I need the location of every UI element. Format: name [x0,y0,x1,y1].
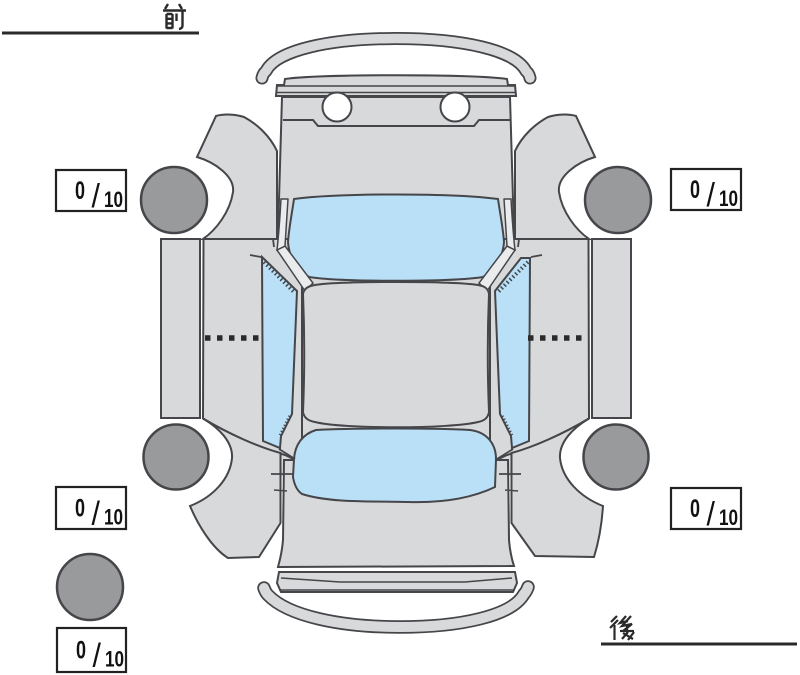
svg-text:0: 0 [76,636,86,665]
svg-text:/: / [92,177,101,214]
svg-text:0: 0 [75,494,85,523]
svg-text:0: 0 [690,175,700,204]
svg-text:10: 10 [719,187,738,212]
svg-text:10: 10 [719,506,738,531]
svg-text:/: / [92,494,101,531]
svg-text:10: 10 [105,648,124,673]
svg-text:0: 0 [75,176,85,205]
svg-text:10: 10 [104,506,123,531]
svg-text:10: 10 [104,188,123,213]
svg-text:0: 0 [690,494,700,523]
svg-text:/: / [93,636,102,673]
svg-text:/: / [707,176,716,213]
svg-text:/: / [707,495,716,532]
